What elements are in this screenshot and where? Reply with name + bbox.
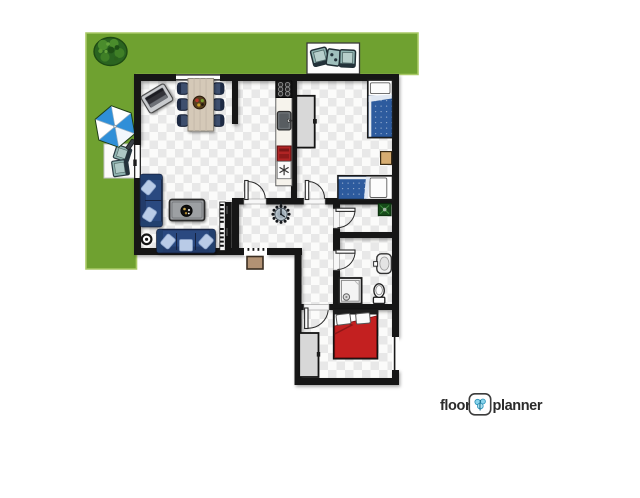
svg-text:floor: floor: [440, 398, 471, 414]
svg-text:planner: planner: [493, 398, 543, 414]
